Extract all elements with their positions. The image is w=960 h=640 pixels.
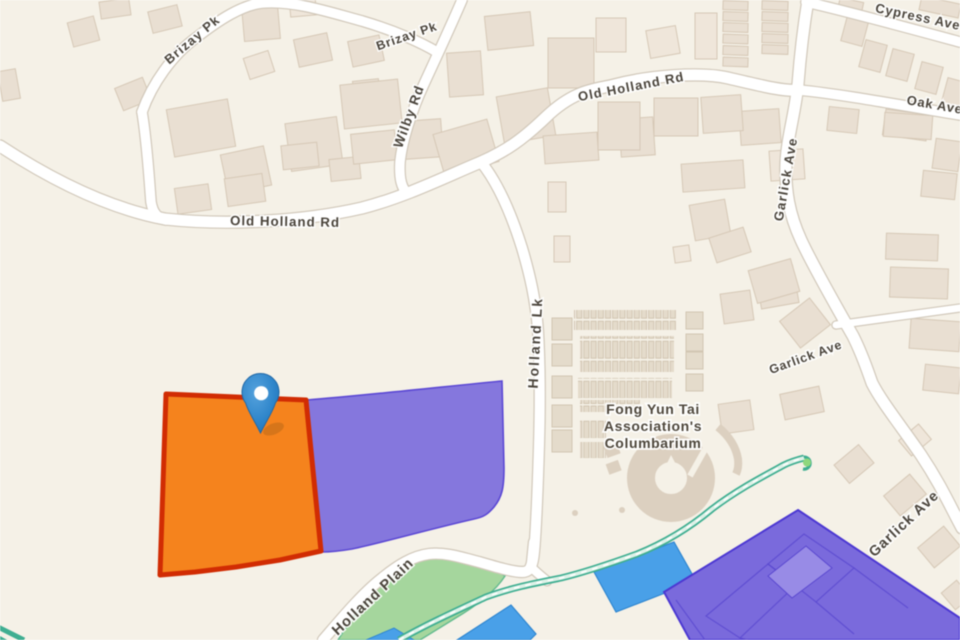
svg-text:Columbarium: Columbarium	[605, 435, 702, 451]
svg-text:Association's: Association's	[604, 418, 702, 434]
svg-text:Fong Yun Tai: Fong Yun Tai	[606, 401, 700, 417]
svg-text:Old Holland Rd: Old Holland Rd	[230, 213, 340, 230]
